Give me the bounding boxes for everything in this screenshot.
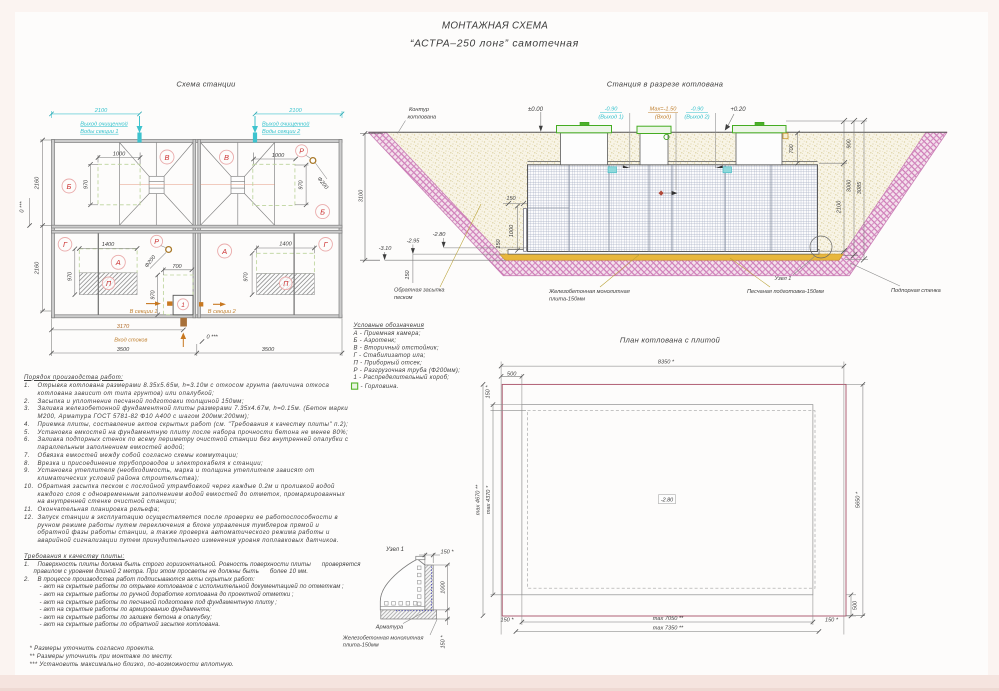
svg-text:котлована: котлована [408, 115, 437, 121]
svg-text:Арматура: Арматура [375, 625, 403, 631]
svg-text:700: 700 [789, 143, 795, 153]
svg-text:±0.00: ±0.00 [528, 107, 544, 113]
svg-text:150 *: 150 * [486, 385, 492, 399]
svg-text:А: А [115, 258, 121, 267]
svg-text:Р: Р [299, 148, 304, 155]
svg-text:970: 970 [299, 179, 305, 189]
svg-text:max 7050 **: max 7050 ** [653, 616, 684, 622]
svg-text:-2.95: -2.95 [407, 239, 421, 245]
svg-text:970: 970 [68, 271, 74, 281]
svg-text:В секции 2: В секции 2 [208, 309, 237, 315]
svg-text:В - Вторичный отстойник;: В - Вторичный отстойник; [354, 345, 439, 352]
svg-text:3100: 3100 [359, 189, 365, 202]
svg-text:-3.10: -3.10 [379, 246, 393, 252]
svg-text:1: 1 [181, 302, 185, 309]
svg-text:2100: 2100 [837, 200, 843, 214]
svg-text:Станция в разрезе котлована: Станция в разрезе котлована [607, 80, 724, 89]
svg-text:150 *: 150 * [440, 635, 446, 649]
svg-text:Воды секции 1: Воды секции 1 [80, 129, 118, 135]
svg-text:Р - Разгрузочная труба (Ф200: Р - Разгрузочная труба (Ф200мм); [354, 368, 461, 374]
svg-text:Узел 1: Узел 1 [774, 276, 792, 282]
svg-text:0 ***: 0 *** [20, 201, 26, 213]
svg-text:П - Приборный отсек;: П - Приборный отсек; [354, 359, 423, 366]
svg-text:(Вход): (Вход) [655, 114, 671, 120]
svg-text:2160: 2160 [35, 261, 41, 275]
svg-text:+0.20: +0.20 [730, 107, 746, 113]
svg-text:1000: 1000 [509, 224, 515, 237]
svg-text:“АСТРА–250 лонг” самотечная: “АСТРА–250 лонг” самотечная [410, 38, 579, 49]
svg-text:150 *: 150 * [825, 618, 839, 624]
svg-text:Б: Б [320, 207, 325, 216]
svg-text:3170: 3170 [117, 324, 130, 330]
svg-text:Вход стоков: Вход стоков [114, 338, 147, 344]
svg-text:(Выход 2): (Выход 2) [684, 114, 709, 120]
svg-text:1000: 1000 [272, 153, 285, 159]
svg-text:Железобетонная монолитная: Железобетонная монолитная [342, 636, 424, 642]
svg-text:Схема станции: Схема станции [176, 80, 236, 89]
svg-text:Выход очищенной: Выход очищенной [80, 120, 127, 127]
svg-text:Р: Р [154, 239, 159, 246]
svg-text:1 - Распределительный короб;: 1 - Распределительный короб; [354, 374, 450, 381]
svg-text:плита-150мм: плита-150мм [549, 297, 585, 303]
svg-text:Б - Аэротенк;: Б - Аэротенк; [354, 338, 397, 344]
svg-text:1000: 1000 [113, 152, 126, 158]
svg-text:2160: 2160 [35, 176, 41, 190]
svg-text:8350 *: 8350 * [658, 360, 675, 366]
svg-text:3000: 3000 [847, 179, 853, 192]
svg-text:А - Приемная камера;: А - Приемная камера; [353, 331, 421, 337]
svg-text:1400: 1400 [102, 242, 115, 248]
svg-text:План котлована с плитой: План котлована с плитой [620, 336, 721, 345]
svg-text:-2.80: -2.80 [661, 497, 673, 503]
svg-text:500: 500 [853, 600, 859, 610]
svg-text:В: В [224, 153, 229, 162]
svg-text:0 ***: 0 *** [207, 335, 219, 341]
svg-text:- Горловина.: - Горловина. [361, 384, 399, 390]
svg-text:Условные обозначения: Условные обозначения [353, 323, 425, 329]
svg-text:Подпорная стенка: Подпорная стенка [891, 288, 941, 294]
svg-text:max 4370 *: max 4370 * [486, 485, 492, 514]
svg-text:А: А [221, 247, 227, 256]
svg-text:970: 970 [84, 179, 90, 189]
svg-text:Г - Стабилизатор ила;: Г - Стабилизатор ила; [354, 353, 426, 359]
svg-text:плита-150мм: плита-150мм [343, 643, 379, 649]
svg-text:Обратная засыпка: Обратная засыпка [394, 288, 445, 294]
svg-text:900: 900 [847, 138, 853, 148]
svg-text:150: 150 [496, 238, 502, 248]
svg-text:150: 150 [405, 269, 411, 279]
svg-text:В: В [164, 153, 169, 162]
svg-text:Мах=-1.50: Мах=-1.50 [650, 107, 678, 113]
svg-text:-0.90: -0.90 [605, 107, 619, 113]
svg-text:970: 970 [151, 289, 157, 299]
svg-text:1000: 1000 [440, 580, 446, 593]
svg-text:5650 *: 5650 * [856, 491, 862, 508]
svg-text:Песчаная подготовка-150мм: Песчаная подготовка-150мм [747, 289, 824, 295]
svg-text:МОНТАЖНАЯ СХЕМА: МОНТАЖНАЯ СХЕМА [442, 21, 548, 32]
svg-text:150 *: 150 * [440, 550, 454, 556]
svg-text:Воды секции 2: Воды секции 2 [262, 129, 301, 135]
svg-text:(Выход 1): (Выход 1) [598, 114, 623, 120]
svg-text:песком: песком [394, 295, 413, 301]
svg-text:970: 970 [243, 271, 249, 281]
svg-text:Выход очищенной: Выход очищенной [262, 120, 309, 127]
svg-text:-0.90: -0.90 [691, 107, 705, 113]
svg-text:150: 150 [506, 196, 516, 202]
svg-text:-2.80: -2.80 [433, 232, 447, 238]
svg-text:max 7350 **: max 7350 ** [653, 625, 684, 631]
svg-text:3085: 3085 [857, 181, 863, 194]
svg-text:1400: 1400 [279, 242, 292, 248]
svg-text:Контур: Контур [409, 107, 429, 113]
svg-text:max 4670 **: max 4670 ** [476, 484, 482, 515]
svg-text:150 *: 150 * [500, 618, 514, 624]
svg-text:2100: 2100 [94, 108, 108, 114]
svg-text:3500: 3500 [262, 347, 275, 353]
svg-text:Б: Б [67, 182, 72, 191]
svg-text:2100: 2100 [288, 108, 302, 114]
svg-text:Узел 1: Узел 1 [385, 547, 404, 553]
svg-text:500: 500 [507, 371, 517, 377]
svg-text:700: 700 [172, 264, 182, 270]
svg-text:Железобетонная монолитная: Железобетонная монолитная [548, 289, 630, 295]
svg-text:В секции 1: В секции 1 [130, 309, 158, 315]
svg-text:3500: 3500 [117, 347, 130, 353]
